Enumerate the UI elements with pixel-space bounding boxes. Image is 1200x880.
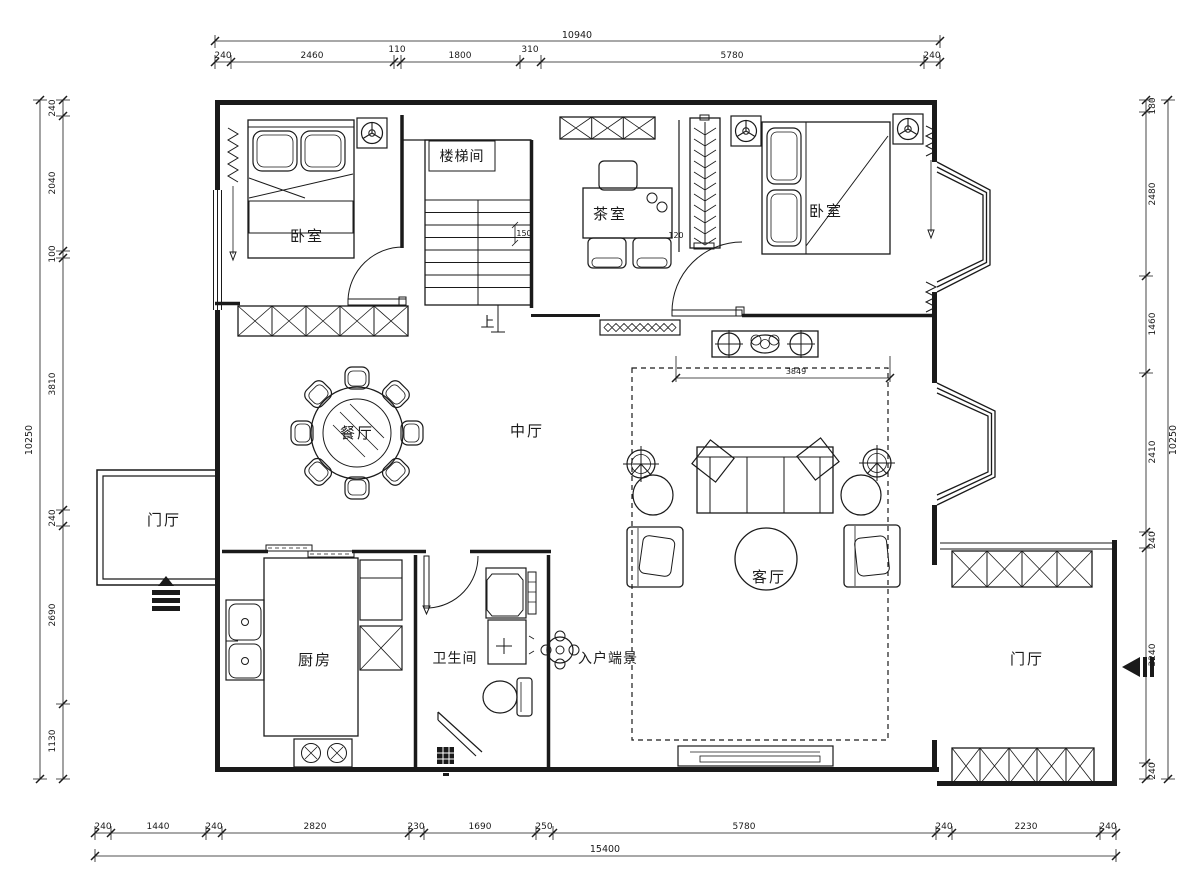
- bay-window-icon: [937, 383, 995, 505]
- room-label-living-room: 客厅: [752, 568, 786, 586]
- room-label-kitchen: 厨房: [298, 651, 332, 669]
- dim-label: 5780: [733, 822, 756, 832]
- console-table-icon: [712, 330, 818, 358]
- armchair-icon: [627, 527, 683, 587]
- dim-label: 10940: [562, 30, 592, 41]
- room-label-bedroom-right: 卧室: [809, 202, 843, 220]
- room-label-entry-vista: 入户端景: [578, 650, 638, 667]
- door-arc-icon: [423, 556, 478, 614]
- dim-label: 2820: [304, 822, 327, 832]
- dim-label: 310: [521, 45, 538, 55]
- room-label-tea-room: 茶室: [593, 205, 627, 223]
- room-label-dining-room: 餐厅: [340, 424, 374, 442]
- plant-icon: [541, 631, 579, 669]
- dim-label: 240: [1148, 762, 1158, 779]
- floor-lamp-icon: [841, 445, 895, 515]
- room-label-bedroom-left: 卧室: [290, 227, 324, 245]
- dim-label: 240: [94, 822, 111, 832]
- floor-plan-drawing: 10940 240 2460 110 1800 310 5780 240 154…: [0, 0, 1200, 880]
- wardrobe-icon: [238, 306, 408, 336]
- bathtub-icon: [486, 568, 536, 618]
- room-label-foyer-right: 门厅: [1010, 650, 1044, 668]
- dim-label: 2230: [1015, 822, 1038, 832]
- toilet-icon: [483, 678, 532, 716]
- dim-label: 180: [1148, 97, 1158, 114]
- kitchen-sink-icon: [226, 600, 264, 680]
- dim-label: 15400: [590, 844, 620, 855]
- bed-icon: [762, 122, 890, 254]
- dim-label: 250: [535, 822, 552, 832]
- ceiling-lamp-icon: [357, 118, 387, 148]
- closet-icon: [952, 748, 1094, 784]
- bay-window-icon: [937, 162, 990, 292]
- dim-label: 1690: [469, 822, 492, 832]
- dim-label: 3810: [48, 372, 58, 395]
- screen-partition-icon: [690, 115, 720, 249]
- dim-label: 1460: [1148, 312, 1158, 335]
- dim-label: 10250: [1168, 425, 1179, 455]
- dim-label: 2690: [48, 603, 58, 626]
- dim-label: 150: [516, 229, 531, 238]
- room-label-bathroom: 卫生间: [433, 651, 478, 667]
- dim-label: 240: [1099, 822, 1116, 832]
- door-arc-icon: [672, 242, 744, 316]
- dim-label: 2480: [1148, 182, 1158, 205]
- sideboard-icon: [600, 320, 680, 335]
- stove-icon: [294, 739, 352, 767]
- dim-label: 240: [48, 509, 58, 526]
- dim-label: 1130: [48, 729, 58, 752]
- dim-label: 10250: [24, 425, 35, 455]
- closet-icon: [952, 551, 1092, 587]
- dim-label: 110: [388, 45, 405, 55]
- sofa-icon: [692, 438, 839, 513]
- dim-label: 120: [668, 231, 683, 240]
- dim-label: 240: [923, 51, 940, 61]
- dim-label: 230: [407, 822, 424, 832]
- dim-label: 240: [214, 51, 231, 61]
- room-label-foyer-left: 门厅: [147, 511, 181, 529]
- floor-lamp-icon: [623, 446, 673, 515]
- vanity-icon: [488, 620, 534, 664]
- room-label-central-hall: 中厅: [510, 422, 544, 440]
- dim-label: 240: [1148, 531, 1158, 548]
- floor-plan-canvas: 10940 240 2460 110 1800 310 5780 240 154…: [0, 0, 1200, 880]
- dim-label: 100: [48, 245, 58, 262]
- tv-cabinet-icon: [678, 746, 833, 766]
- stairs-icon: [425, 140, 531, 332]
- room-label-stairs-up: 上: [481, 315, 496, 331]
- kitchen-cabinet-icon: [360, 560, 402, 670]
- dim-label: 2410: [1148, 440, 1158, 463]
- armchair-icon: [844, 525, 900, 587]
- dim-label: 2040: [48, 171, 58, 194]
- sliding-door-icon: [266, 545, 354, 557]
- dim-label: 240: [205, 822, 222, 832]
- cabinet-icon: [560, 117, 655, 139]
- radiator-icon: [228, 128, 238, 260]
- dim-label: 2460: [301, 51, 324, 61]
- dim-label: 240: [48, 99, 58, 116]
- exterior-walls: [215, 100, 1117, 786]
- door-arc-icon: [348, 247, 406, 306]
- ceiling-lamp-icon: [893, 114, 923, 144]
- dim-label: 3849: [786, 367, 806, 376]
- ceiling-lamp-icon: [731, 116, 761, 146]
- dimension-column-left: [33, 96, 70, 783]
- steps-icon: [152, 576, 180, 611]
- dim-label: 240: [935, 822, 952, 832]
- dim-label: 5780: [721, 51, 744, 61]
- dim-label: 1440: [147, 822, 170, 832]
- room-label-stairwell: 楼梯间: [440, 149, 485, 165]
- window-left-wall: [214, 190, 222, 310]
- dim-label: 1800: [449, 51, 472, 61]
- kitchen-island-icon: [264, 558, 358, 736]
